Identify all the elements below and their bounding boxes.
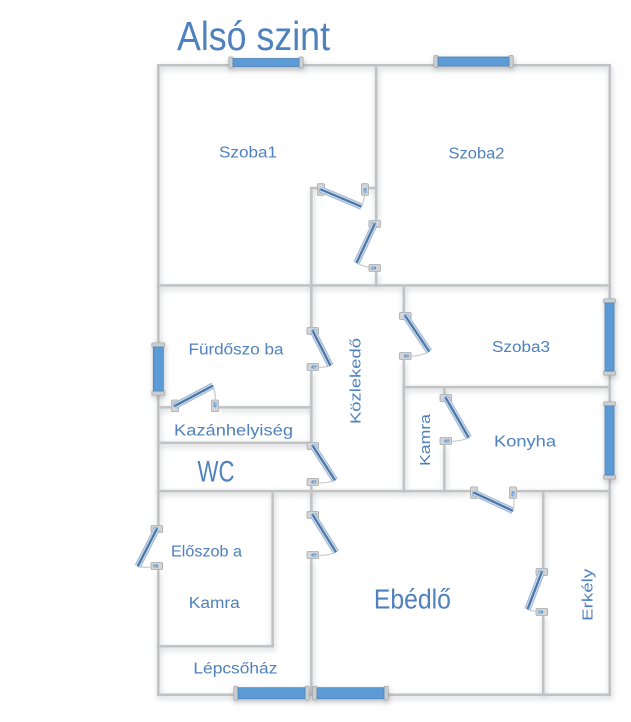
svg-text:Fürdőszo ba: Fürdőszo ba (189, 342, 284, 359)
svg-text:Konyha: Konyha (494, 434, 556, 451)
svg-text:Alsó szint: Alsó szint (177, 13, 331, 59)
svg-text:Közlekedő: Közlekedő (347, 338, 364, 424)
svg-text:Kazánhelyiség: Kazánhelyiség (174, 423, 293, 440)
svg-text:Ebédlő: Ebédlő (374, 584, 451, 615)
svg-text:Szoba2: Szoba2 (449, 146, 505, 163)
svg-text:Lépcsőház: Lépcsőház (193, 661, 277, 678)
svg-text:Kamra: Kamra (189, 595, 240, 612)
svg-text:Kamra: Kamra (417, 413, 434, 466)
svg-text:WC: WC (198, 455, 235, 488)
svg-text:Előszob a: Előszob a (171, 544, 242, 561)
svg-text:Szoba3: Szoba3 (492, 339, 550, 356)
svg-text:Szoba1: Szoba1 (219, 145, 277, 162)
svg-text:Erkély: Erkély (580, 568, 597, 621)
